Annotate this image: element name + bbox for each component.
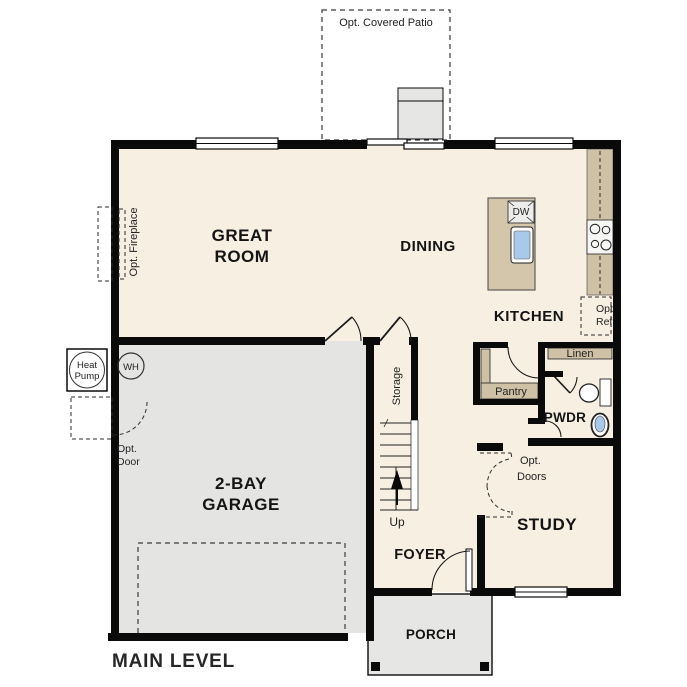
great-room-label-1: GREAT — [212, 226, 273, 245]
great-room-label-2: ROOM — [215, 247, 270, 266]
plan-title: MAIN LEVEL — [112, 651, 235, 672]
heat-pump-label-1: Heat — [77, 360, 97, 371]
porch-post-right — [480, 662, 489, 671]
study-label: STUDY — [517, 515, 577, 534]
dining-label: DINING — [400, 238, 456, 255]
kitchen-label: KITCHEN — [494, 308, 564, 325]
opt-fireplace-box — [98, 207, 112, 281]
wall-linen-bottom — [545, 371, 563, 377]
sink — [514, 231, 530, 259]
wall-linen-top — [545, 342, 613, 348]
wall-right — [613, 140, 621, 596]
porch-post-left — [371, 662, 380, 671]
wall-pantry-left — [473, 342, 480, 405]
opt-door-label-1: Opt. — [117, 443, 137, 455]
heat-pump-label-2: Pump — [75, 371, 100, 382]
opt-door-label-2: Door — [117, 456, 140, 468]
burner-icon — [602, 226, 610, 234]
wall-bottom-foyer — [373, 588, 432, 596]
patio-slider-panel-1 — [367, 139, 407, 145]
pwdr-label: PWDR — [544, 410, 586, 425]
wall-study-left — [477, 515, 485, 596]
wall-garage-right — [366, 345, 374, 641]
burner-icon — [591, 240, 598, 247]
garage-label-1: 2-BAY — [215, 474, 267, 493]
patio-slider-panel-2 — [404, 143, 444, 149]
foyer-label: FOYER — [394, 547, 446, 563]
linen-label: Linen — [567, 348, 594, 360]
wall-garage-bottom — [108, 633, 348, 641]
toilet-bowl — [595, 416, 605, 432]
wall-pantry-bottom — [473, 399, 545, 405]
sink-oval — [580, 384, 599, 402]
patio-label: Opt. Covered Patio — [339, 17, 433, 29]
opt-fireplace-label: Opt. Fireplace — [128, 207, 140, 276]
pantry-label: Pantry — [495, 386, 527, 398]
wall-powder-jog — [528, 418, 545, 424]
front-door-leaf — [466, 549, 472, 591]
wall-powder-bottom — [528, 438, 613, 446]
opt-doors-label-1: Opt. — [520, 455, 541, 467]
opt-ref-label-1: Opt. — [596, 303, 616, 315]
wall-study-top-stub — [477, 443, 503, 451]
burner-icon — [590, 224, 600, 234]
vanity — [600, 379, 611, 406]
floor-plan: Opt. Covered Patio PORCH Opt. Ref DW — [0, 0, 687, 687]
dw-label: DW — [513, 207, 530, 218]
opt-doors-label-2: Doors — [517, 471, 547, 483]
porch-label: PORCH — [406, 627, 456, 642]
up-label: Up — [389, 515, 405, 529]
wall-stair-right — [411, 342, 418, 420]
opt-ref-label-2: Ref — [596, 316, 612, 328]
wall-greatroom-garage — [111, 337, 325, 345]
burner-icon — [601, 240, 611, 250]
wall-stub-1 — [363, 337, 380, 345]
patio-step — [398, 88, 443, 139]
garage-label-2: GARAGE — [202, 495, 280, 514]
porch: PORCH — [368, 594, 492, 675]
storage-label: Storage — [391, 367, 403, 406]
wall-pantry-right — [538, 342, 545, 422]
stair-rail — [411, 420, 418, 510]
opt-door-pad — [71, 397, 112, 439]
water-heater-label: WH — [123, 362, 139, 373]
covered-patio: Opt. Covered Patio — [322, 10, 450, 140]
floor-plan-svg: Opt. Covered Patio PORCH Opt. Ref DW — [0, 0, 687, 687]
